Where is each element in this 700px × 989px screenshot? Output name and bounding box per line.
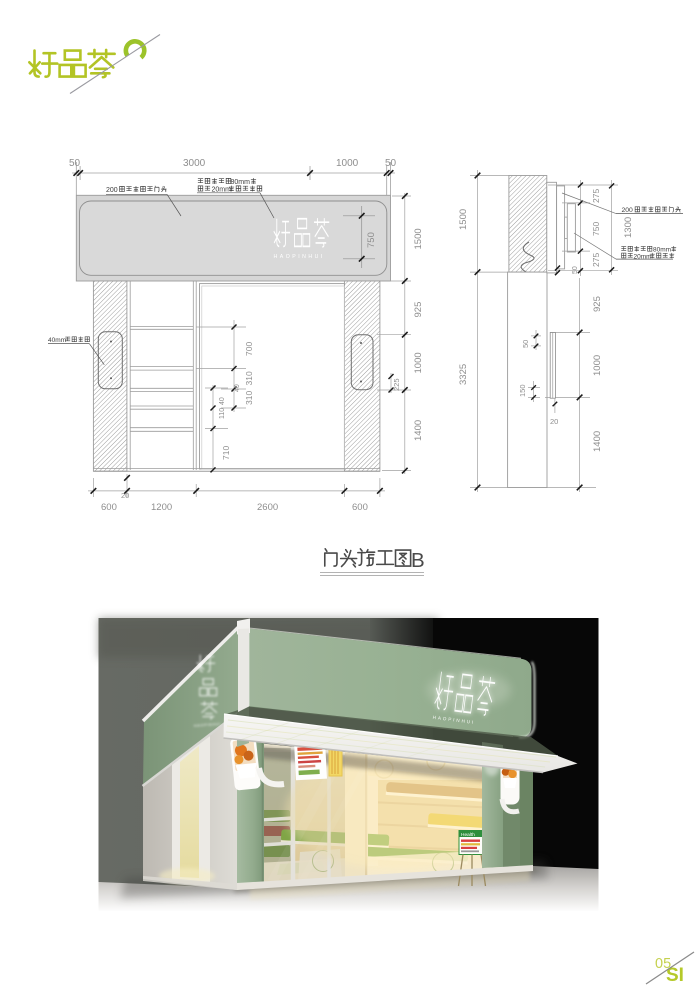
svg-text:200: 200	[106, 187, 118, 194]
svg-text:50: 50	[572, 266, 579, 274]
svg-text:50: 50	[69, 158, 81, 169]
svg-text:600: 600	[352, 502, 368, 513]
svg-text:HAOPINHUI: HAOPINHUI	[274, 254, 325, 260]
svg-text:1400: 1400	[413, 420, 424, 441]
svg-text:1400: 1400	[592, 431, 603, 452]
svg-text:1200: 1200	[151, 502, 172, 513]
svg-text:1000: 1000	[592, 355, 603, 376]
svg-text:1500: 1500	[458, 209, 469, 230]
svg-text:1000: 1000	[336, 158, 359, 169]
svg-text:3000: 3000	[183, 158, 206, 169]
svg-text:2600: 2600	[257, 502, 278, 513]
svg-text:150: 150	[518, 384, 527, 397]
svg-text:600: 600	[101, 502, 117, 513]
svg-text:40: 40	[234, 384, 241, 392]
svg-text:275: 275	[591, 189, 601, 203]
svg-text:B: B	[411, 549, 425, 572]
svg-text:Health: Health	[461, 832, 475, 838]
svg-text:275: 275	[591, 253, 601, 267]
svg-text:925: 925	[592, 296, 603, 312]
svg-text:1500: 1500	[413, 228, 424, 249]
svg-text:SI: SI	[666, 965, 684, 986]
svg-text:110: 110	[219, 408, 226, 419]
svg-text:80mm: 80mm	[231, 179, 251, 186]
svg-text:710: 710	[221, 446, 231, 460]
svg-text:20: 20	[121, 491, 129, 500]
svg-text:1300: 1300	[623, 217, 634, 238]
svg-text:700: 700	[244, 342, 254, 356]
svg-text:40mm: 40mm	[48, 337, 66, 344]
svg-text:310: 310	[244, 391, 254, 405]
svg-text:40: 40	[219, 397, 226, 405]
svg-text:50: 50	[385, 158, 397, 169]
svg-text:1000: 1000	[413, 352, 424, 373]
svg-text:225: 225	[392, 378, 401, 391]
svg-text:50: 50	[521, 340, 530, 348]
svg-text:750: 750	[591, 222, 601, 236]
svg-text:3325: 3325	[458, 364, 469, 385]
svg-text:310: 310	[244, 371, 254, 385]
svg-text:925: 925	[413, 302, 424, 318]
svg-text:20: 20	[550, 417, 558, 426]
svg-text:80mm: 80mm	[653, 247, 671, 254]
svg-text:750: 750	[366, 232, 377, 248]
svg-text:200: 200	[622, 207, 634, 214]
